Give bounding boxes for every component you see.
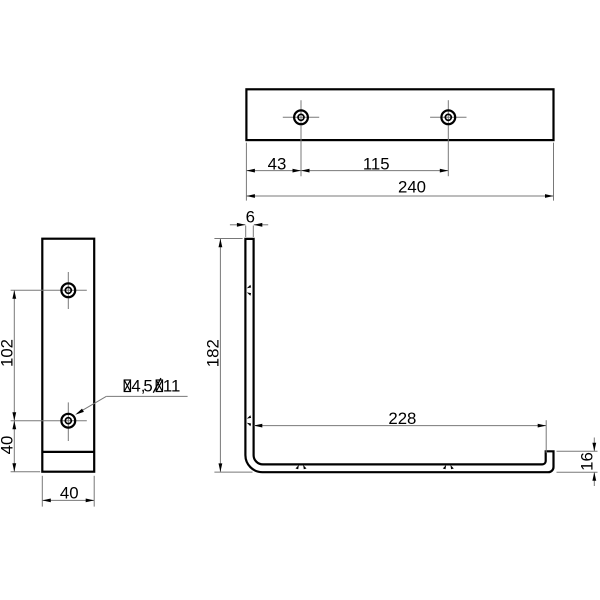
svg-text:40: 40: [60, 483, 79, 502]
svg-text:102: 102: [0, 339, 16, 367]
svg-text:182: 182: [203, 339, 222, 367]
svg-text:40: 40: [0, 436, 16, 455]
svg-text:16: 16: [577, 452, 596, 471]
svg-text:5: 5: [143, 377, 152, 396]
svg-text:11: 11: [163, 377, 180, 396]
svg-text:228: 228: [388, 409, 416, 428]
svg-text:240: 240: [398, 178, 426, 197]
svg-text:43: 43: [268, 155, 287, 174]
svg-text:115: 115: [363, 155, 390, 174]
svg-text:6: 6: [246, 207, 255, 226]
